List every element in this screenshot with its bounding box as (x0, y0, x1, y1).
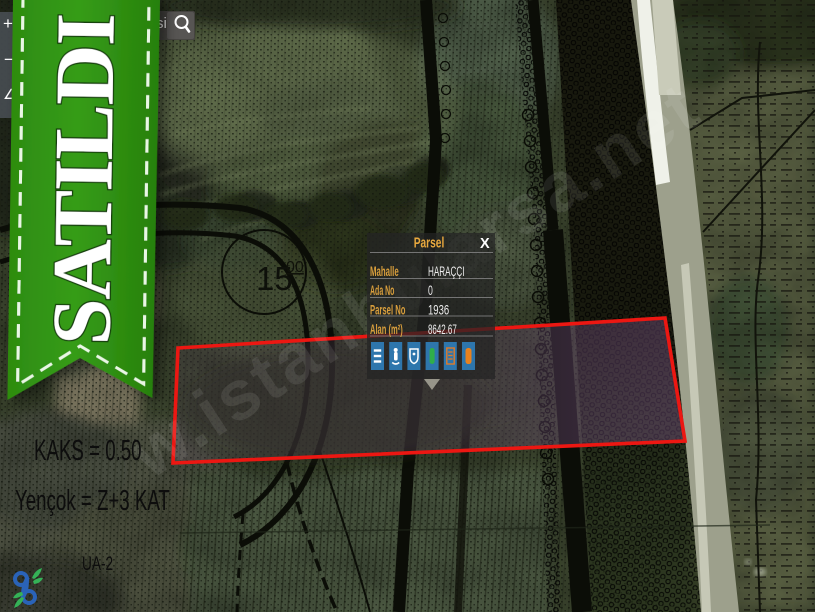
svg-text:Ada No: Ada No (370, 284, 395, 299)
svg-text:00: 00 (286, 259, 304, 276)
svg-text:Yençok = Z+3 KAT: Yençok = Z+3 KAT (15, 485, 170, 517)
svg-text:SATILDI: SATILDI (35, 12, 133, 345)
svg-text:8642.67: 8642.67 (428, 323, 457, 338)
svg-text:Parsel: Parsel (414, 233, 445, 251)
svg-text:1936: 1936 (428, 302, 449, 318)
svg-text:Alan (m²): Alan (m²) (370, 323, 403, 338)
svg-text:Mahalle: Mahalle (370, 265, 399, 280)
svg-text:HARAÇÇI: HARAÇÇI (428, 265, 465, 280)
svg-text:KAKS = 0.50: KAKS = 0.50 (34, 435, 142, 467)
svg-text:UA-2: UA-2 (82, 553, 113, 575)
svg-text:0: 0 (428, 283, 433, 299)
svg-text:Parsel No: Parsel No (370, 303, 406, 318)
svg-text:X: X (480, 236, 490, 252)
